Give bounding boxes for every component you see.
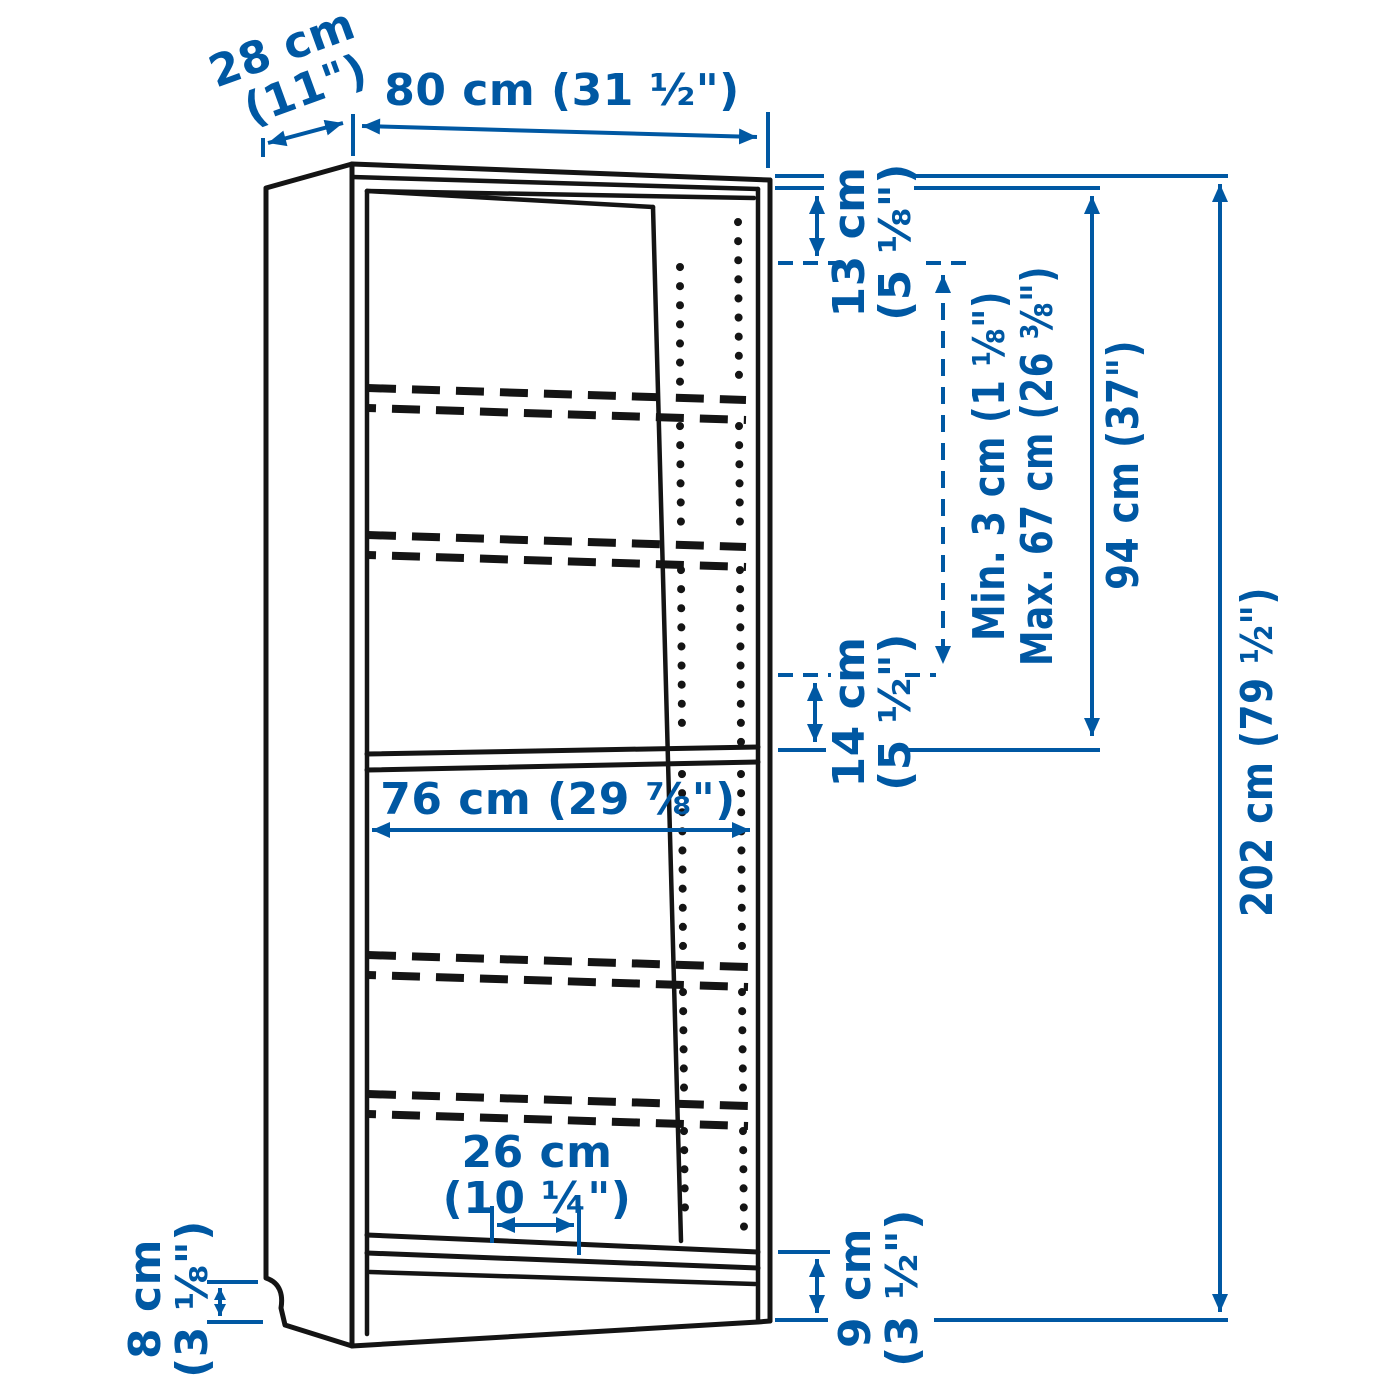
dim-plinth-left-label-cm: 8 cm <box>120 1239 171 1359</box>
dim-shelf-min-label: Min. 3 cm (1 ⅛") <box>964 291 1015 641</box>
dim-total-height-label: 202 cm (79 ½") <box>1232 587 1283 917</box>
dim-shelf-max-label: Max. 67 cm (26 ⅜") <box>1012 266 1063 666</box>
peg-holes-front-column <box>738 222 744 1230</box>
dim-plinth-right-label-cm: 9 cm <box>830 1228 881 1348</box>
plinth-bottom-edge <box>352 1321 770 1346</box>
fixed-shelf <box>367 747 758 770</box>
dim-total-height: 202 cm (79 ½") <box>1220 184 1283 1312</box>
dim-shelf-range: Min. 3 cm (1 ⅛") Max. 67 cm (26 ⅜") <box>943 266 1063 666</box>
dim-width-label: 80 cm (31 ½") <box>384 65 740 116</box>
dim-plinth-left-label-in: (3 ⅛") <box>167 1220 218 1378</box>
dim-width-line <box>362 126 757 137</box>
bookcase-side-panel <box>266 164 352 1346</box>
diagram-canvas: 28 cm (11") 80 cm (31 ½") 13 cm (5 ⅛") <box>0 0 1400 1400</box>
adjustable-shelf-2 <box>368 535 746 567</box>
dim-mid-gap-label-in: (5 ½") <box>870 633 921 791</box>
dim-top-gap-label-in: (5 ⅛") <box>870 163 921 321</box>
dim-interior-width-label: 76 cm (29 ⅞") <box>380 774 736 825</box>
dim-bottom-depth-label-in: (10 ¼") <box>443 1173 632 1224</box>
dim-upper-height-label: 94 cm (37") <box>1098 340 1149 590</box>
dim-plinth-right: 9 cm (3 ½") <box>775 1209 1228 1367</box>
dim-interior-width: 76 cm (29 ⅞") <box>372 774 750 830</box>
dim-bottom-depth-label-cm: 26 cm <box>462 1127 613 1178</box>
bookcase-dimension-diagram: 28 cm (11") 80 cm (31 ½") 13 cm (5 ⅛") <box>0 0 1400 1400</box>
dim-depth: 28 cm (11") <box>202 0 377 157</box>
adjustable-shelf-4 <box>368 1094 748 1126</box>
dim-mid-gap: 14 cm (5 ½") <box>778 633 936 791</box>
peg-holes-back-column <box>680 267 685 1212</box>
dim-bottom-depth: 26 cm (10 ¼") <box>443 1127 632 1255</box>
dim-mid-gap-label-cm: 14 cm <box>824 637 875 788</box>
dim-plinth-left: 8 cm (3 ⅛") <box>120 1220 263 1378</box>
dim-width: 80 cm (31 ½") <box>362 65 768 168</box>
dimension-annotations: 28 cm (11") 80 cm (31 ½") 13 cm (5 ⅛") <box>120 0 1283 1378</box>
adjustable-shelf-1 <box>368 388 746 420</box>
adjustable-shelf-3 <box>368 955 748 987</box>
bottom-shelf <box>367 1235 758 1284</box>
dim-plinth-right-label-in: (3 ½") <box>877 1209 928 1367</box>
dim-top-gap-label-cm: 13 cm <box>824 167 875 318</box>
